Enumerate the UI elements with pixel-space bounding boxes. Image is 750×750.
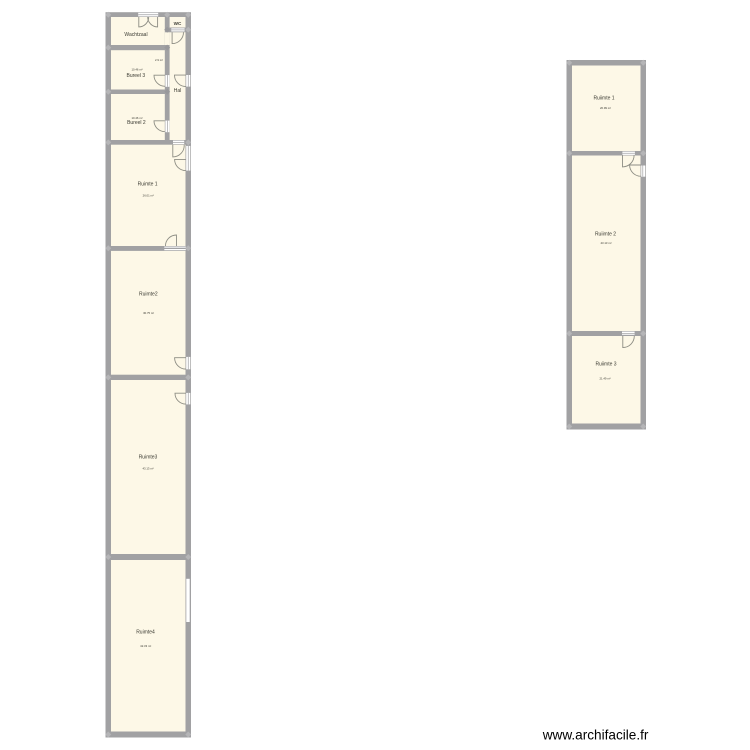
svg-text:Bureel 3: Bureel 3 — [126, 73, 145, 79]
svg-text:Ruimte3: Ruimte3 — [139, 455, 158, 461]
svg-text:21.49 m²: 21.49 m² — [599, 377, 610, 381]
svg-text:Hal: Hal — [174, 88, 182, 94]
svg-text:43.13 m²: 43.13 m² — [600, 241, 611, 245]
svg-text:42.33 m²: 42.33 m² — [140, 644, 151, 648]
svg-text:Ruiimte 2: Ruiimte 2 — [595, 231, 616, 237]
svg-text:2.9 m²: 2.9 m² — [155, 58, 163, 62]
svg-text:WC: WC — [174, 21, 182, 26]
svg-text:30.75 m²: 30.75 m² — [143, 311, 154, 315]
svg-text:Bureel 2: Bureel 2 — [127, 120, 146, 126]
svg-text:Ruiimte 1: Ruiimte 1 — [593, 96, 614, 102]
svg-text:www.archifacile.fr: www.archifacile.fr — [542, 727, 649, 742]
svg-text:10.46 m²: 10.46 m² — [131, 67, 142, 71]
svg-text:Ruimte4: Ruimte4 — [136, 630, 155, 636]
svg-text:Wachtzaal: Wachtzaal — [124, 32, 147, 38]
svg-text:Ruiimte 3: Ruiimte 3 — [595, 362, 616, 368]
svg-text:Ruimte 1: Ruimte 1 — [138, 182, 158, 188]
svg-text:43.13 m²: 43.13 m² — [142, 467, 153, 471]
svg-text:Ruimte2: Ruimte2 — [139, 292, 158, 298]
svg-text:20.99 m²: 20.99 m² — [600, 106, 611, 110]
svg-text:26.01 m²: 26.01 m² — [143, 193, 154, 197]
